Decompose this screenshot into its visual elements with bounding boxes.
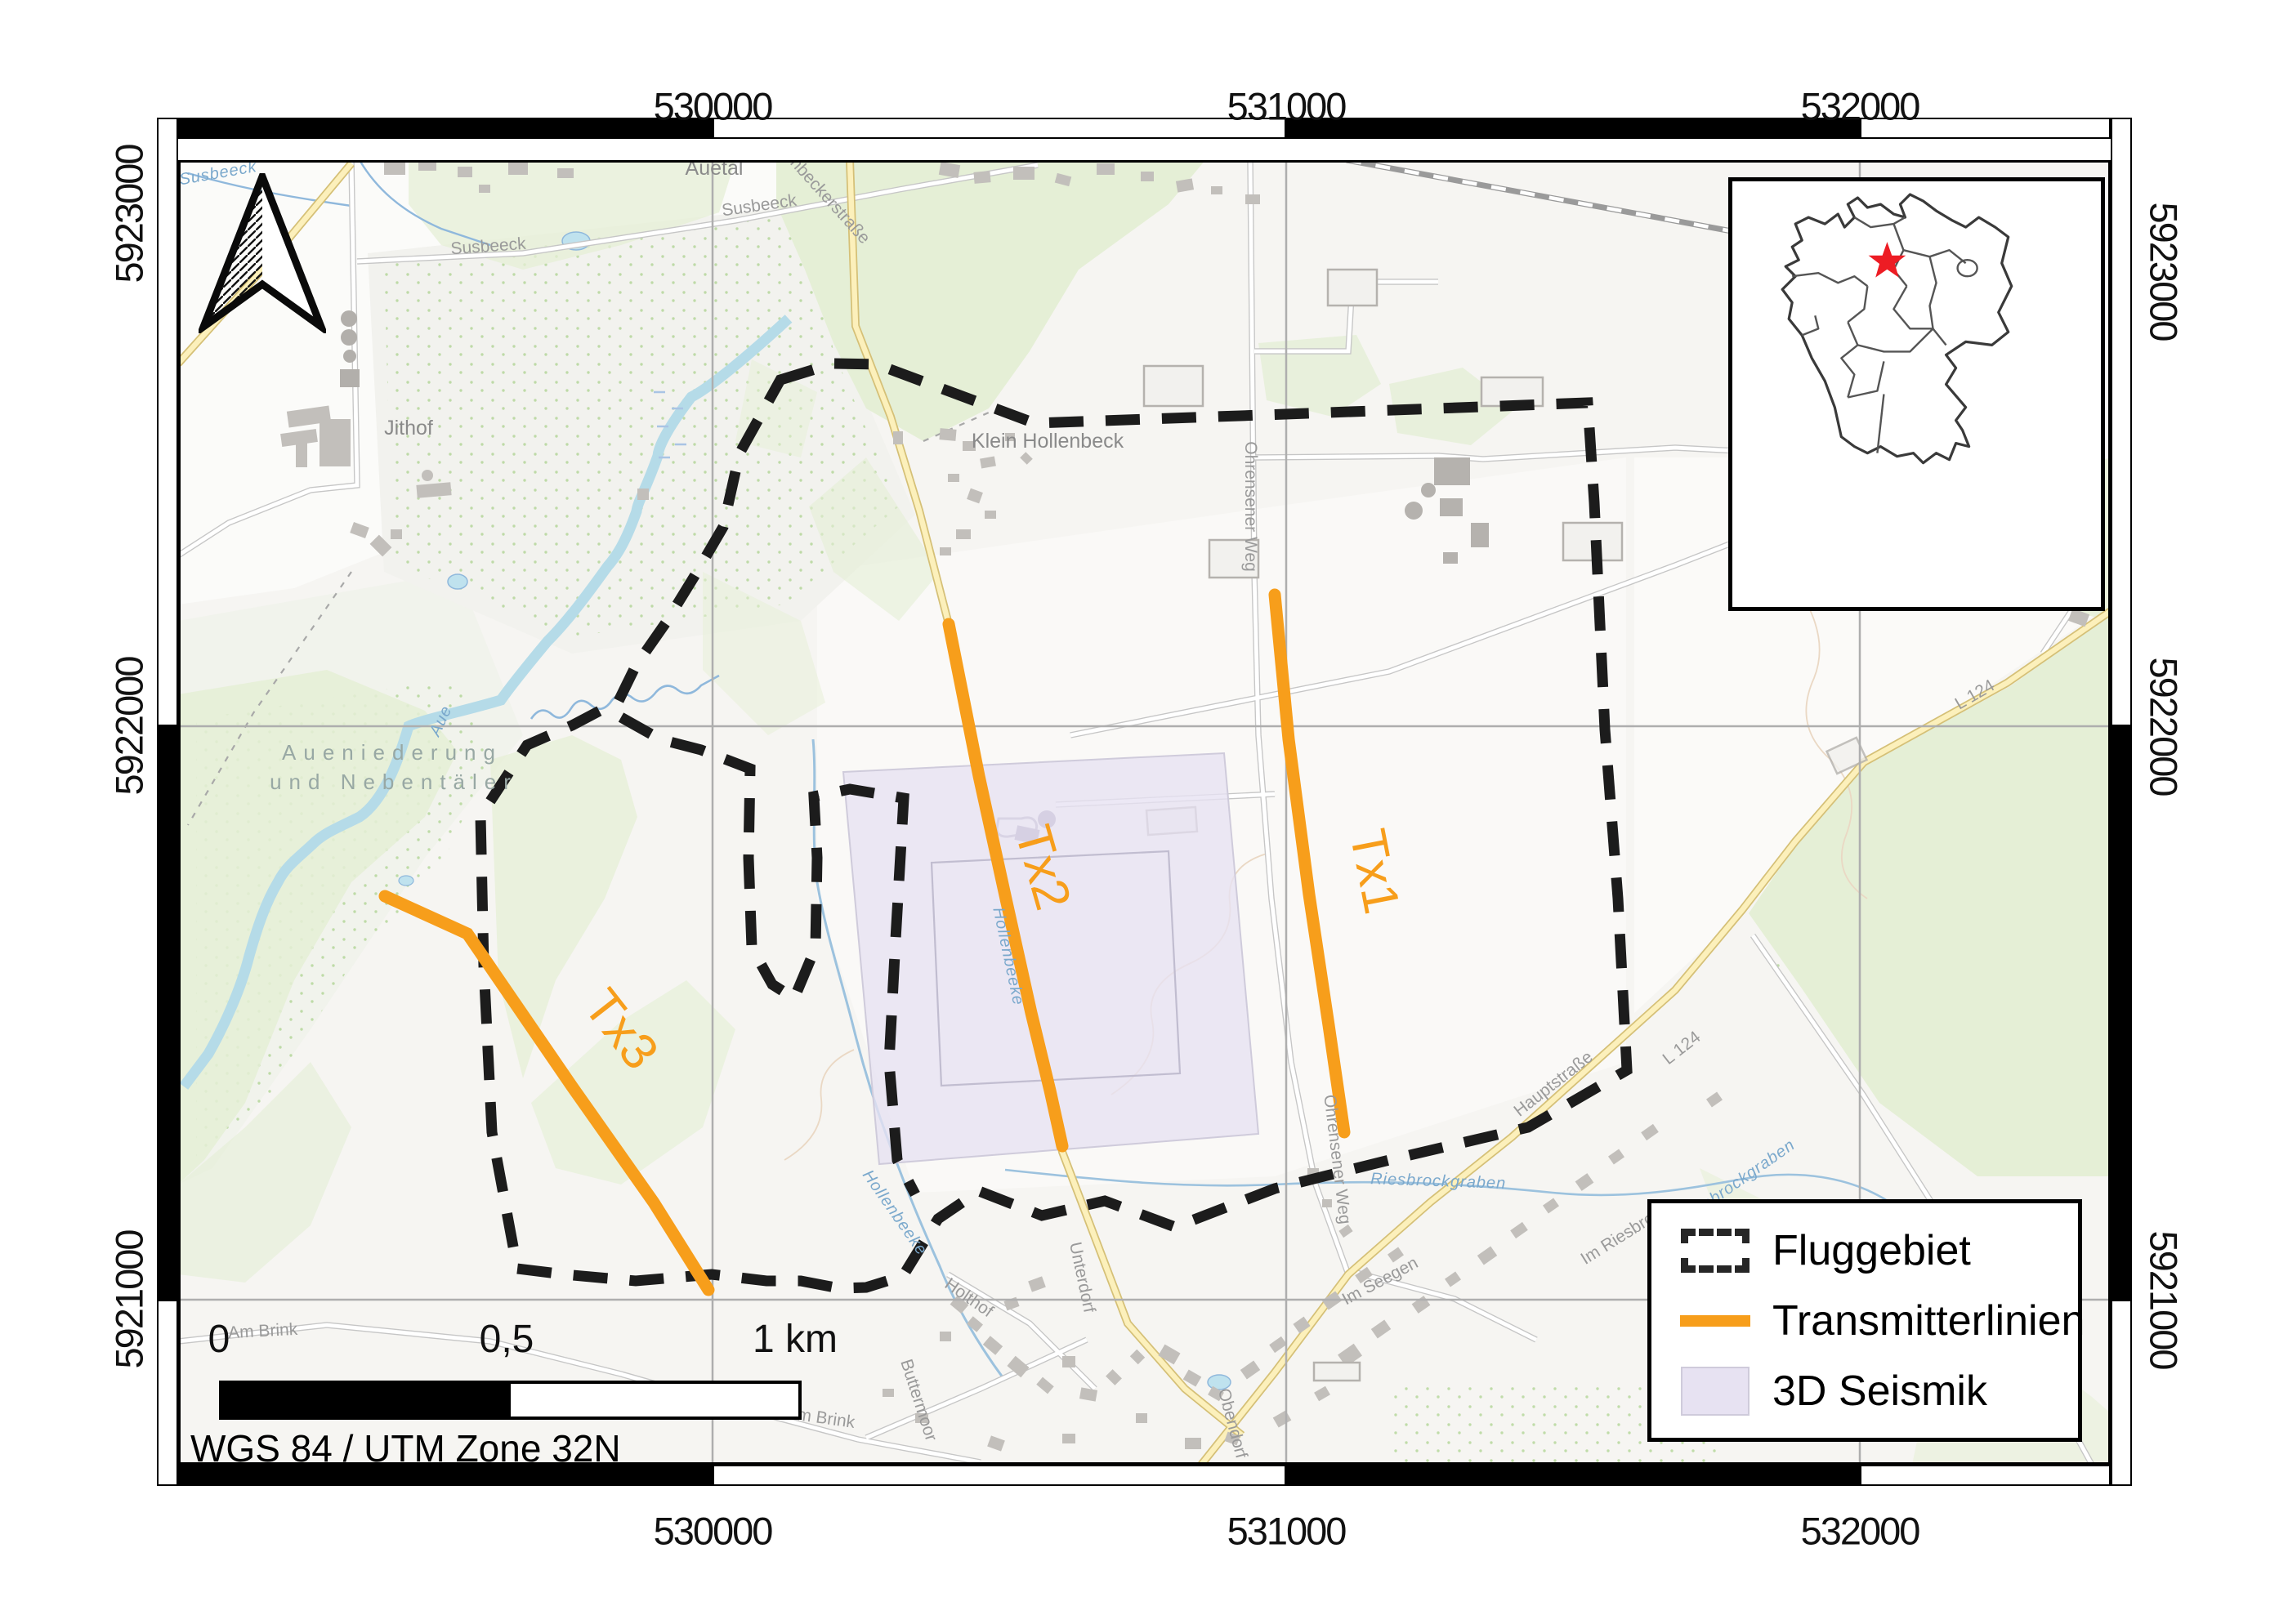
dashed-rect-icon [1681, 1229, 1750, 1273]
legend-item: Transmitterlinien [1679, 1296, 2078, 1345]
zebra-segment [1286, 1465, 1860, 1486]
zebra-segment [713, 118, 1286, 139]
zebra-segment [2111, 726, 2132, 1300]
zebra-segment [713, 1465, 1286, 1486]
axis-tick-label-left: 5923000 [107, 145, 152, 283]
scale-bar: 00,51 km [219, 1317, 795, 1420]
legend-symbol-purple-rect [1679, 1367, 1751, 1416]
axis-tick-label-right: 5923000 [2142, 203, 2187, 341]
purple-rect-icon [1681, 1367, 1750, 1416]
axis-tick-label-left: 5922000 [107, 658, 152, 796]
scale-bar-number: 1 km [753, 1317, 838, 1362]
axis-tick-label-left: 5921000 [107, 1231, 152, 1369]
axis-tick-label-top: 531000 [1227, 84, 1346, 129]
legend-item: Fluggebiet [1679, 1226, 2078, 1275]
legend: FluggebietTransmitterlinien3D Seismik [1647, 1199, 2082, 1442]
legend-symbol-dashed-rect [1679, 1229, 1751, 1273]
axis-tick-label-top: 532000 [1801, 84, 1919, 129]
legend-label: Transmitterlinien [1772, 1296, 2085, 1345]
legend-label: 3D Seismik [1772, 1367, 1987, 1416]
zebra-segment [157, 118, 178, 726]
zebra-segment [178, 118, 713, 139]
axis-tick-label-right: 5921000 [2142, 1231, 2187, 1369]
scale-bar-white-half [511, 1384, 799, 1417]
scale-bar-number: 0,5 [480, 1317, 534, 1362]
germany-states-icon [1732, 181, 2101, 607]
zebra-segment [157, 726, 178, 1300]
orange-line-icon [1680, 1315, 1750, 1327]
zebra-segment [2111, 118, 2132, 726]
north-arrow-icon [199, 173, 326, 333]
axis-tick-label-bottom: 532000 [1801, 1509, 1919, 1554]
zebra-segment [1860, 1465, 2111, 1486]
scale-bar-number: 0 [208, 1317, 230, 1362]
legend-label: Fluggebiet [1772, 1226, 1971, 1275]
axis-tick-label-right: 5922000 [2142, 658, 2187, 796]
map-figure: Tx1Tx2Tx3 JithofKlein HollenbeckAuetalSu… [0, 0, 2288, 1624]
legend-item: 3D Seismik [1679, 1367, 2078, 1416]
red-star-icon [1869, 242, 1906, 277]
scale-bar-graphic [219, 1381, 802, 1420]
crs-label: WGS 84 / UTM Zone 32N [190, 1426, 621, 1470]
legend-symbol-orange-line [1679, 1315, 1751, 1327]
zebra-segment [157, 1300, 178, 1486]
zebra-segment [2111, 1300, 2132, 1486]
scale-bar-numbers: 00,51 km [219, 1317, 795, 1366]
axis-tick-label-top: 530000 [654, 84, 772, 129]
germany-inset-map [1728, 177, 2105, 611]
axis-tick-label-bottom: 530000 [654, 1509, 772, 1554]
zebra-segment [1286, 118, 1860, 139]
scale-bar-black-half [222, 1384, 511, 1417]
axis-tick-label-bottom: 531000 [1227, 1509, 1346, 1554]
